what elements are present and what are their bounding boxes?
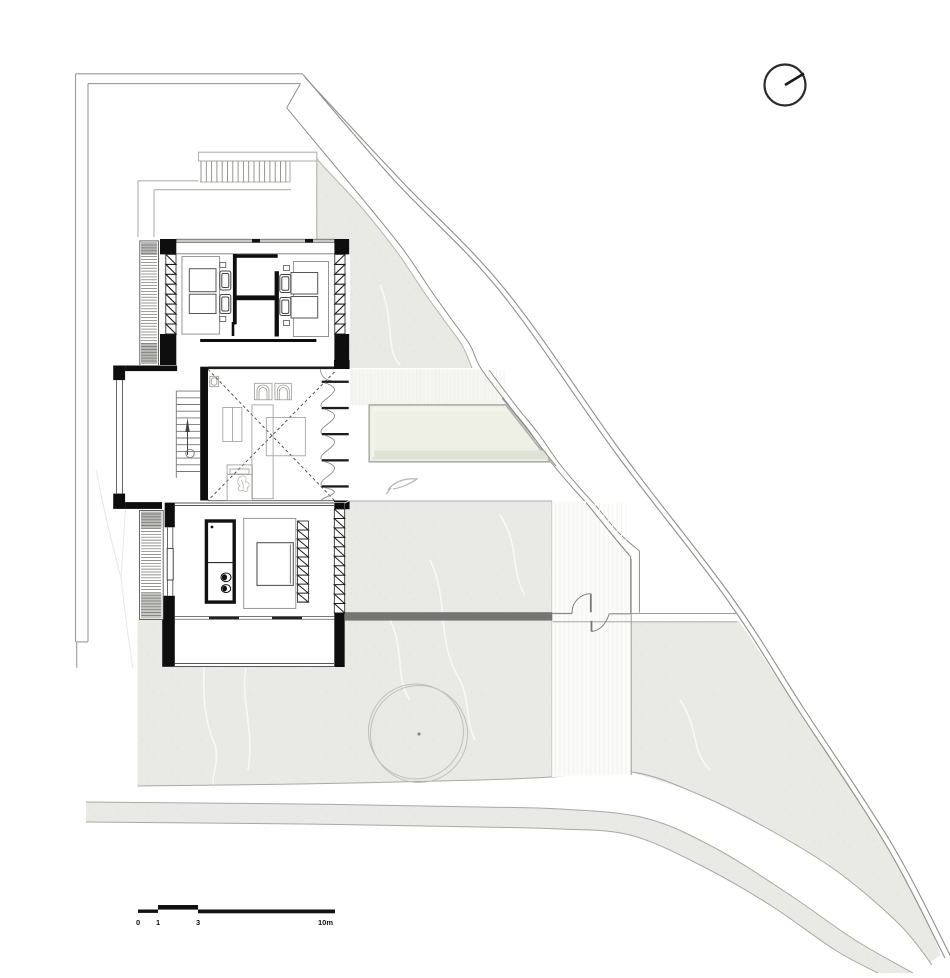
svg-text:3: 3	[196, 918, 200, 927]
svg-text:1: 1	[156, 918, 160, 927]
svg-text:0: 0	[136, 918, 140, 927]
svg-text:10m: 10m	[318, 918, 333, 927]
